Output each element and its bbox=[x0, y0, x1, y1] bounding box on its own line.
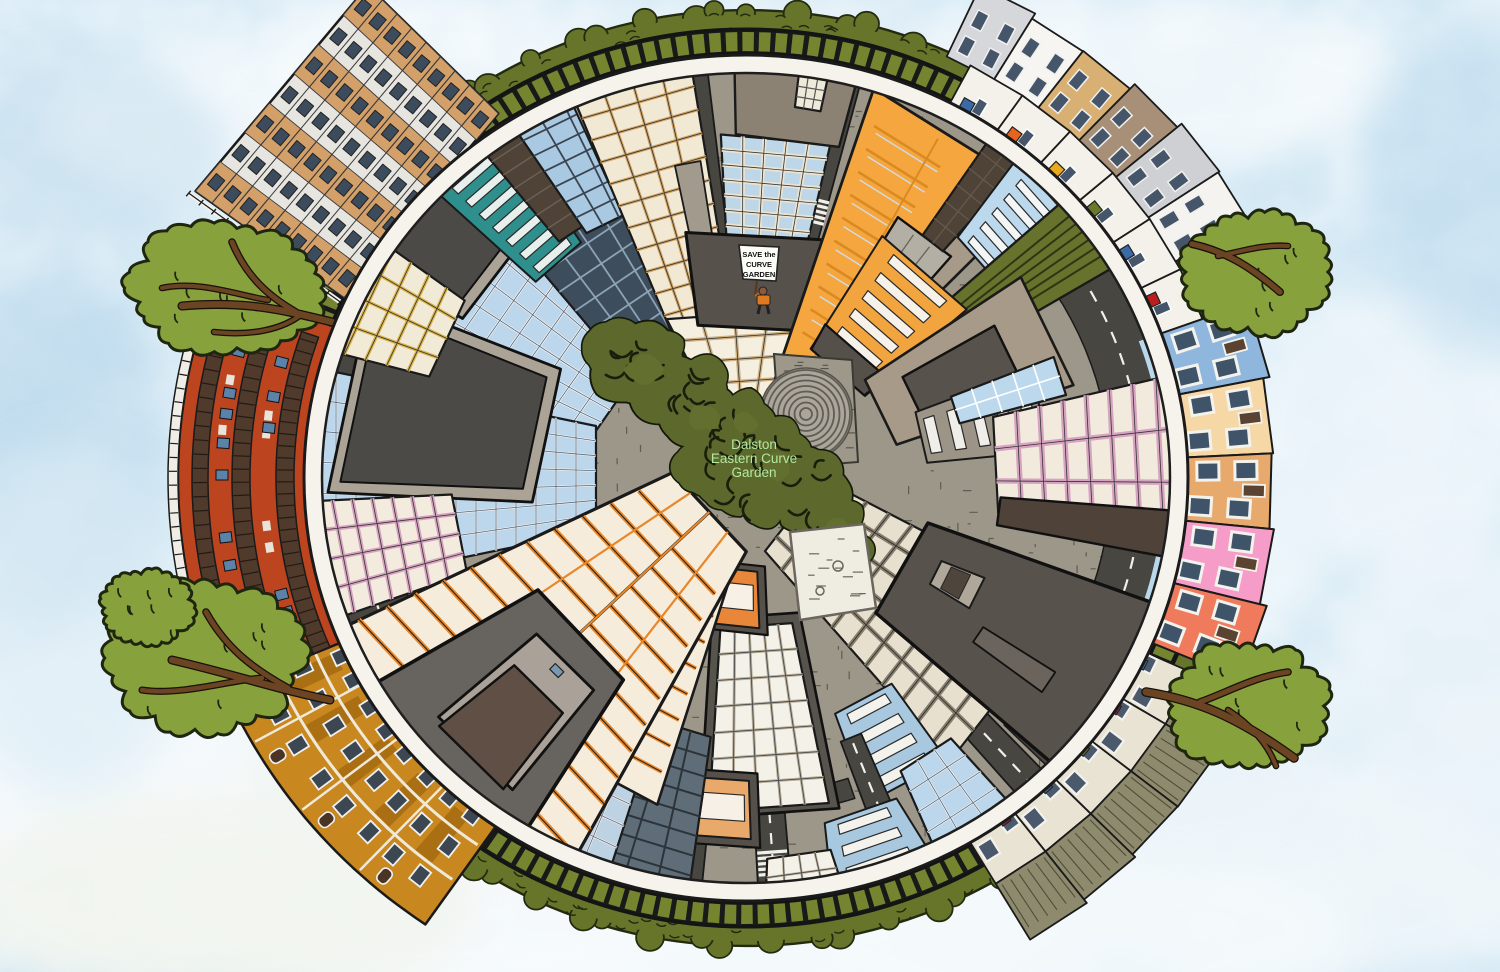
svg-text:SAVE the: SAVE the bbox=[742, 250, 775, 259]
svg-text:Eastern Curve: Eastern Curve bbox=[711, 451, 797, 466]
svg-text:CURVE: CURVE bbox=[746, 260, 772, 269]
svg-text:Dalston: Dalston bbox=[731, 437, 777, 452]
svg-text:Garden: Garden bbox=[731, 465, 776, 480]
svg-text:GARDEN: GARDEN bbox=[743, 270, 776, 279]
